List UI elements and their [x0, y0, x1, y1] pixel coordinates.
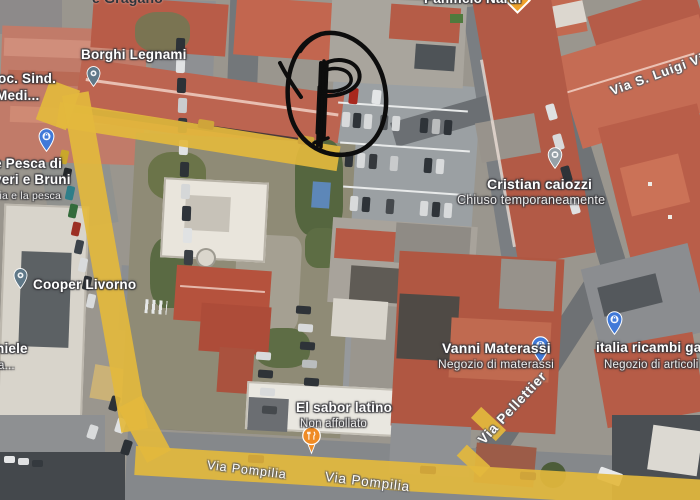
panificio-nardi-label[interactable]: Panificio Nardi	[424, 0, 522, 6]
daniele-label-line1[interactable]: niele	[0, 342, 28, 356]
el-sabor-latino-label[interactable]: El sabor latino	[296, 401, 392, 415]
pesca-label-line3[interactable]: cia e la pesca	[0, 191, 61, 202]
italia-ricambi-label[interactable]: italia ricambi gas	[596, 341, 700, 355]
vanni-materassi-label[interactable]: Vanni Materassi	[442, 341, 551, 356]
pesca-shopping-pin[interactable]	[38, 128, 55, 152]
assoc-label-line1[interactable]: oc. Sind.	[0, 72, 56, 86]
pesca-label-line2[interactable]: veri e Bruni	[0, 173, 71, 187]
italia-ricambi-pin[interactable]	[606, 311, 623, 335]
cooper-livorno-label[interactable]: Cooper Livorno	[33, 278, 136, 292]
top-partial-label: e Gragano	[92, 0, 163, 6]
el-sabor-latino-pin[interactable]	[301, 426, 322, 456]
cristian-caiozzi-pin[interactable]	[547, 147, 563, 169]
el-sabor-latino-status: Non affollato	[300, 418, 367, 430]
cooper-livorno-pin[interactable]	[13, 268, 28, 289]
borghi-legnami-label[interactable]: Borghi Legnami	[81, 48, 187, 62]
pesca-label-line1[interactable]: e Pesca di	[0, 157, 62, 171]
cristian-caiozzi-status: Chiuso temporaneamente	[457, 194, 605, 207]
map-canvas[interactable]: e Gragano Borghi Legnami Panificio Nardi…	[0, 0, 700, 500]
borghi-legnami-pin[interactable]	[86, 66, 101, 87]
hand-drawn-p-annotation	[275, 25, 400, 165]
daniele-label-line2[interactable]: a...	[0, 360, 15, 372]
cristian-caiozzi-label[interactable]: Cristian caiozzi	[487, 177, 592, 192]
italia-ricambi-category: Negozio di articoli da ca	[604, 359, 700, 371]
assoc-label-line2[interactable]: Medi...	[0, 89, 39, 103]
